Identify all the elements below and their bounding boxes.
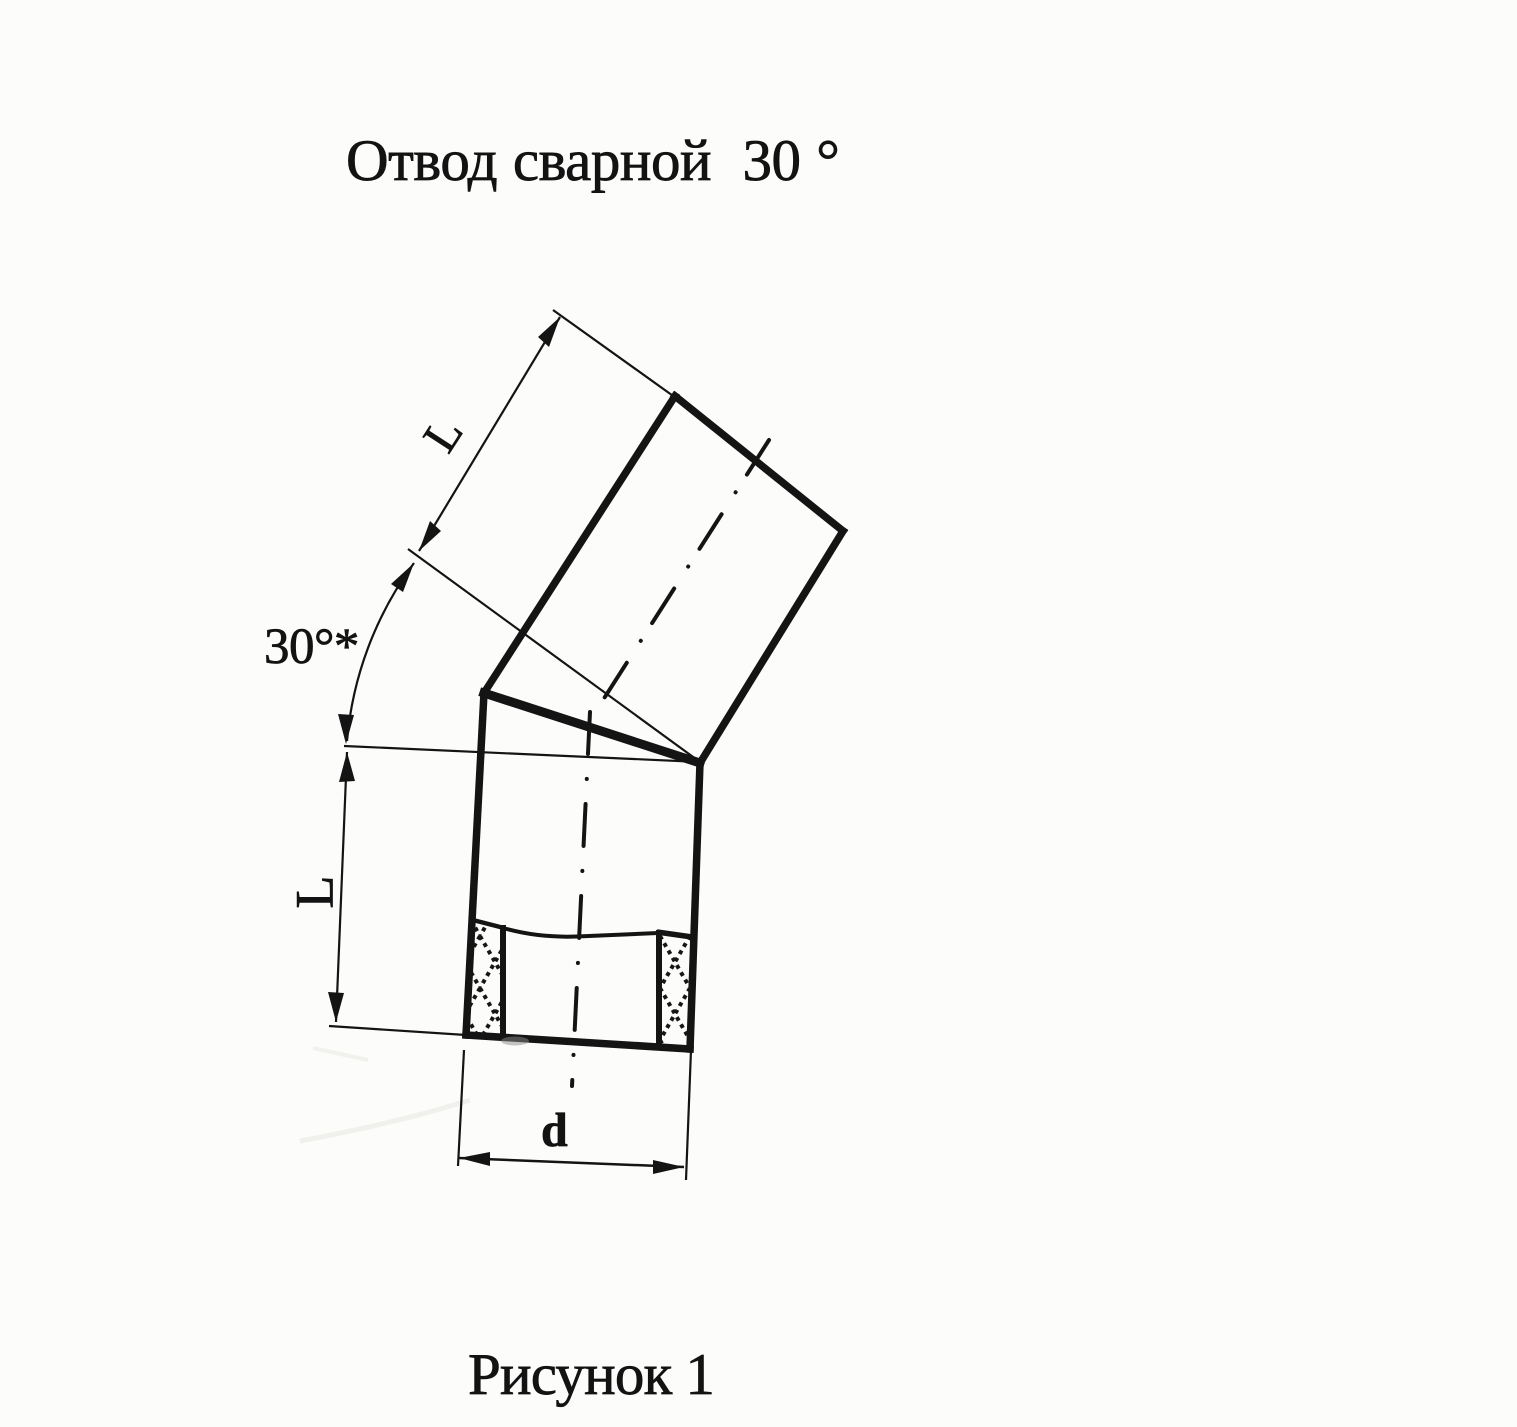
svg-text:Отвод сварной 30 °: Отвод сварной 30 °	[346, 127, 839, 193]
svg-text:d: d	[541, 1104, 568, 1157]
svg-text:30°*: 30°*	[264, 619, 359, 675]
svg-text:L: L	[284, 876, 344, 909]
svg-text:Рисунок 1: Рисунок 1	[468, 1341, 714, 1407]
